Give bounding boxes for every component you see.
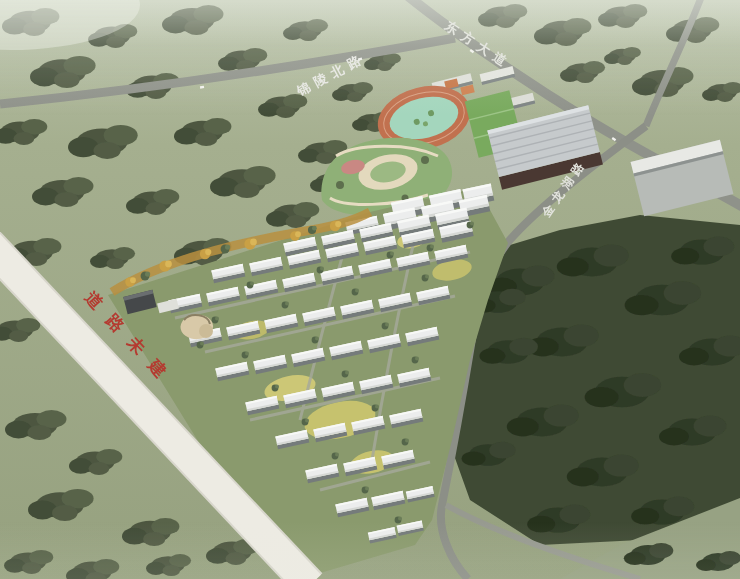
haze-overlay — [0, 0, 740, 579]
masterplan-scene: 道路未建 锦陵北路 东方大道 金龙湖路 — [0, 0, 740, 579]
aerial-rendering: 道路未建 锦陵北路 东方大道 金龙湖路 — [0, 0, 740, 579]
